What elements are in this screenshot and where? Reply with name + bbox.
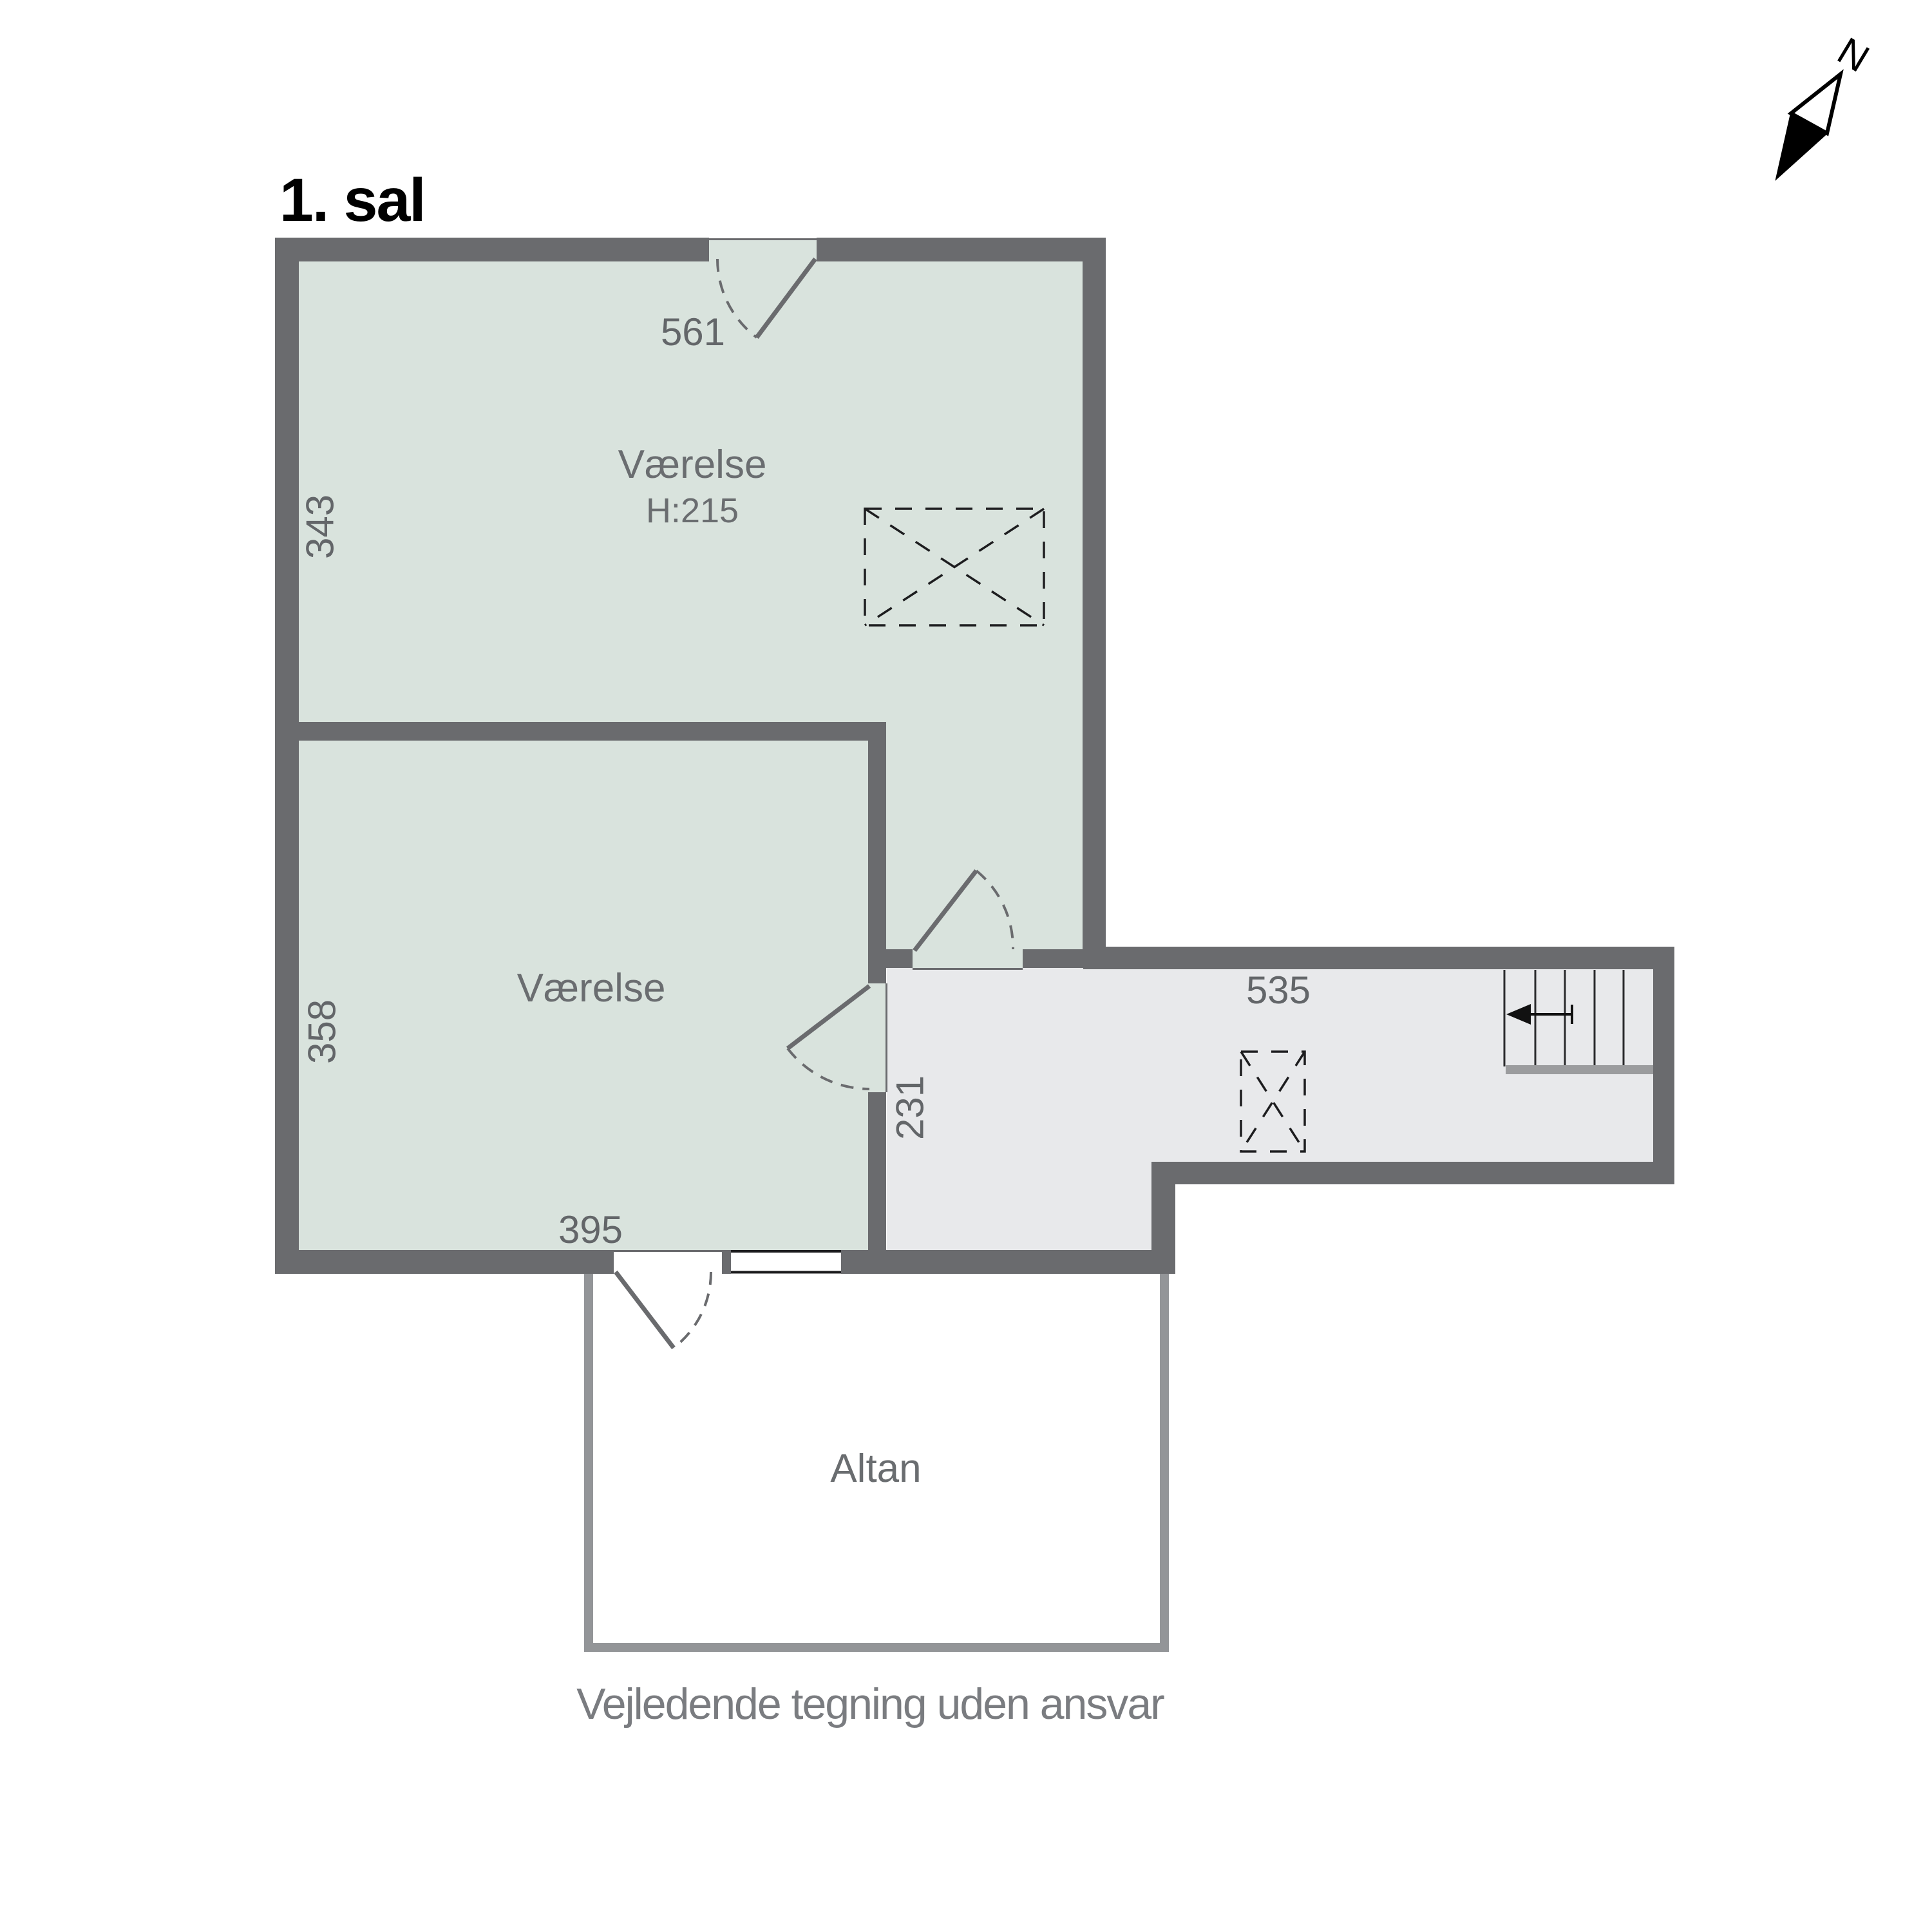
svg-text:231: 231 (889, 1075, 932, 1140)
svg-text:395: 395 (558, 1208, 623, 1251)
svg-text:Vejledende tegning uden ansvar: Vejledende tegning uden ansvar (576, 1680, 1164, 1728)
svg-text:1. sal: 1. sal (279, 166, 425, 234)
svg-text:561: 561 (661, 310, 725, 354)
svg-text:358: 358 (301, 999, 344, 1064)
svg-text:H:215: H:215 (646, 491, 739, 530)
svg-text:Værelse: Værelse (517, 966, 666, 1010)
svg-text:Værelse: Værelse (618, 442, 767, 487)
svg-text:Altan: Altan (830, 1446, 921, 1491)
svg-text:535: 535 (1246, 969, 1311, 1012)
svg-text:343: 343 (299, 495, 342, 559)
